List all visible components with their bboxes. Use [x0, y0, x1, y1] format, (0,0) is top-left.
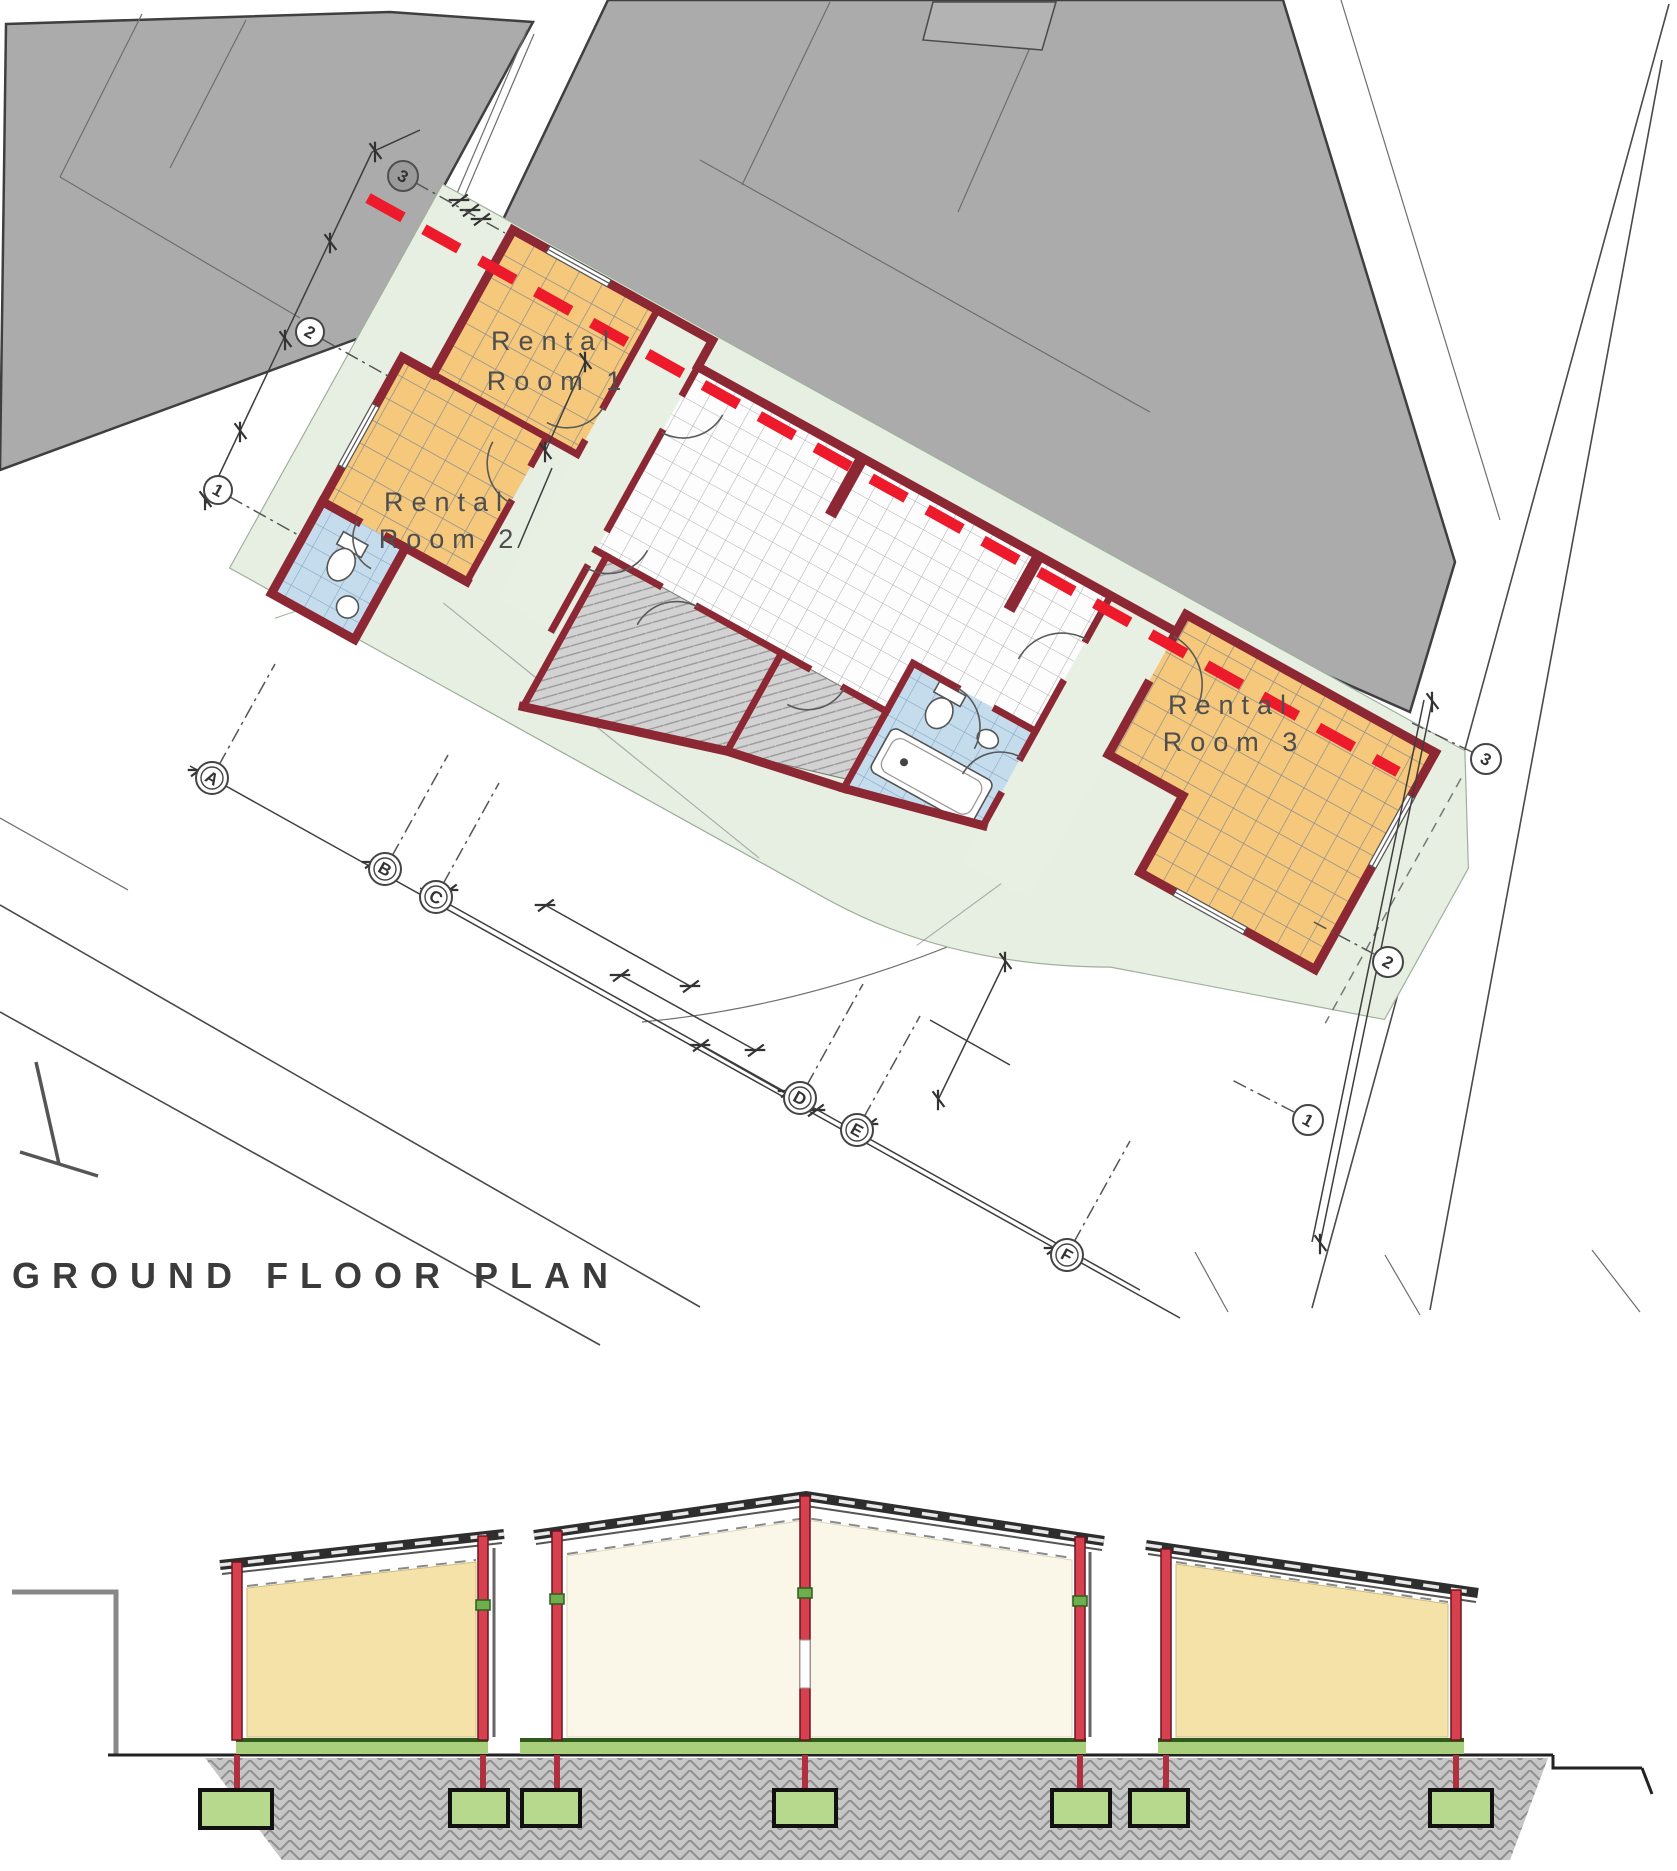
rental-room-2-label-line2: Room 2: [379, 524, 522, 554]
rental-room-3-label-line2: Room 3: [1163, 727, 1306, 757]
center-interior: [567, 1520, 1072, 1737]
rental-room-3-label-line1: Rental: [1168, 690, 1294, 720]
grid-bubble-f: F: [1051, 1239, 1083, 1271]
grid-bubble-a: A: [196, 762, 228, 794]
grid-bubble-2-left: 2: [296, 318, 324, 346]
grid-bubble-3-left: 3: [388, 161, 418, 191]
neighbor-wall-section: [12, 1592, 116, 1754]
ground-hatch: [205, 1758, 1548, 1860]
architectural-drawing: 3 2 1 A B C D E F 3 2 1 Rental Room 1 Re…: [0, 0, 1677, 1871]
grid-bubble-d: D: [784, 1082, 816, 1114]
rental-room-1-label-line1: Rental: [491, 326, 617, 356]
floor-slabs: [236, 1740, 1464, 1754]
rental-room-1-label-line2: Room 1: [487, 366, 630, 396]
grid-bubble-c: C: [420, 881, 452, 913]
rental-room-2-label-line1: Rental: [384, 487, 510, 517]
boundary-wall-symbol: [20, 1062, 98, 1176]
grid-bubble-2-right: 2: [1373, 947, 1403, 977]
grid-bubble-b: B: [369, 853, 401, 885]
right-wall-panel: [1176, 1564, 1448, 1737]
page-title: GROUND FLOOR PLAN: [12, 1255, 620, 1296]
left-wall-panel: [247, 1562, 476, 1737]
grid-bubble-3-right: 3: [1471, 744, 1501, 774]
grid-bubble-1-right: 1: [1293, 1105, 1323, 1135]
section-drawing: [12, 1496, 1652, 1860]
grid-bubble-1-left: 1: [204, 476, 232, 504]
column-gap: [800, 1640, 810, 1688]
grid-bubble-e: E: [841, 1114, 873, 1146]
